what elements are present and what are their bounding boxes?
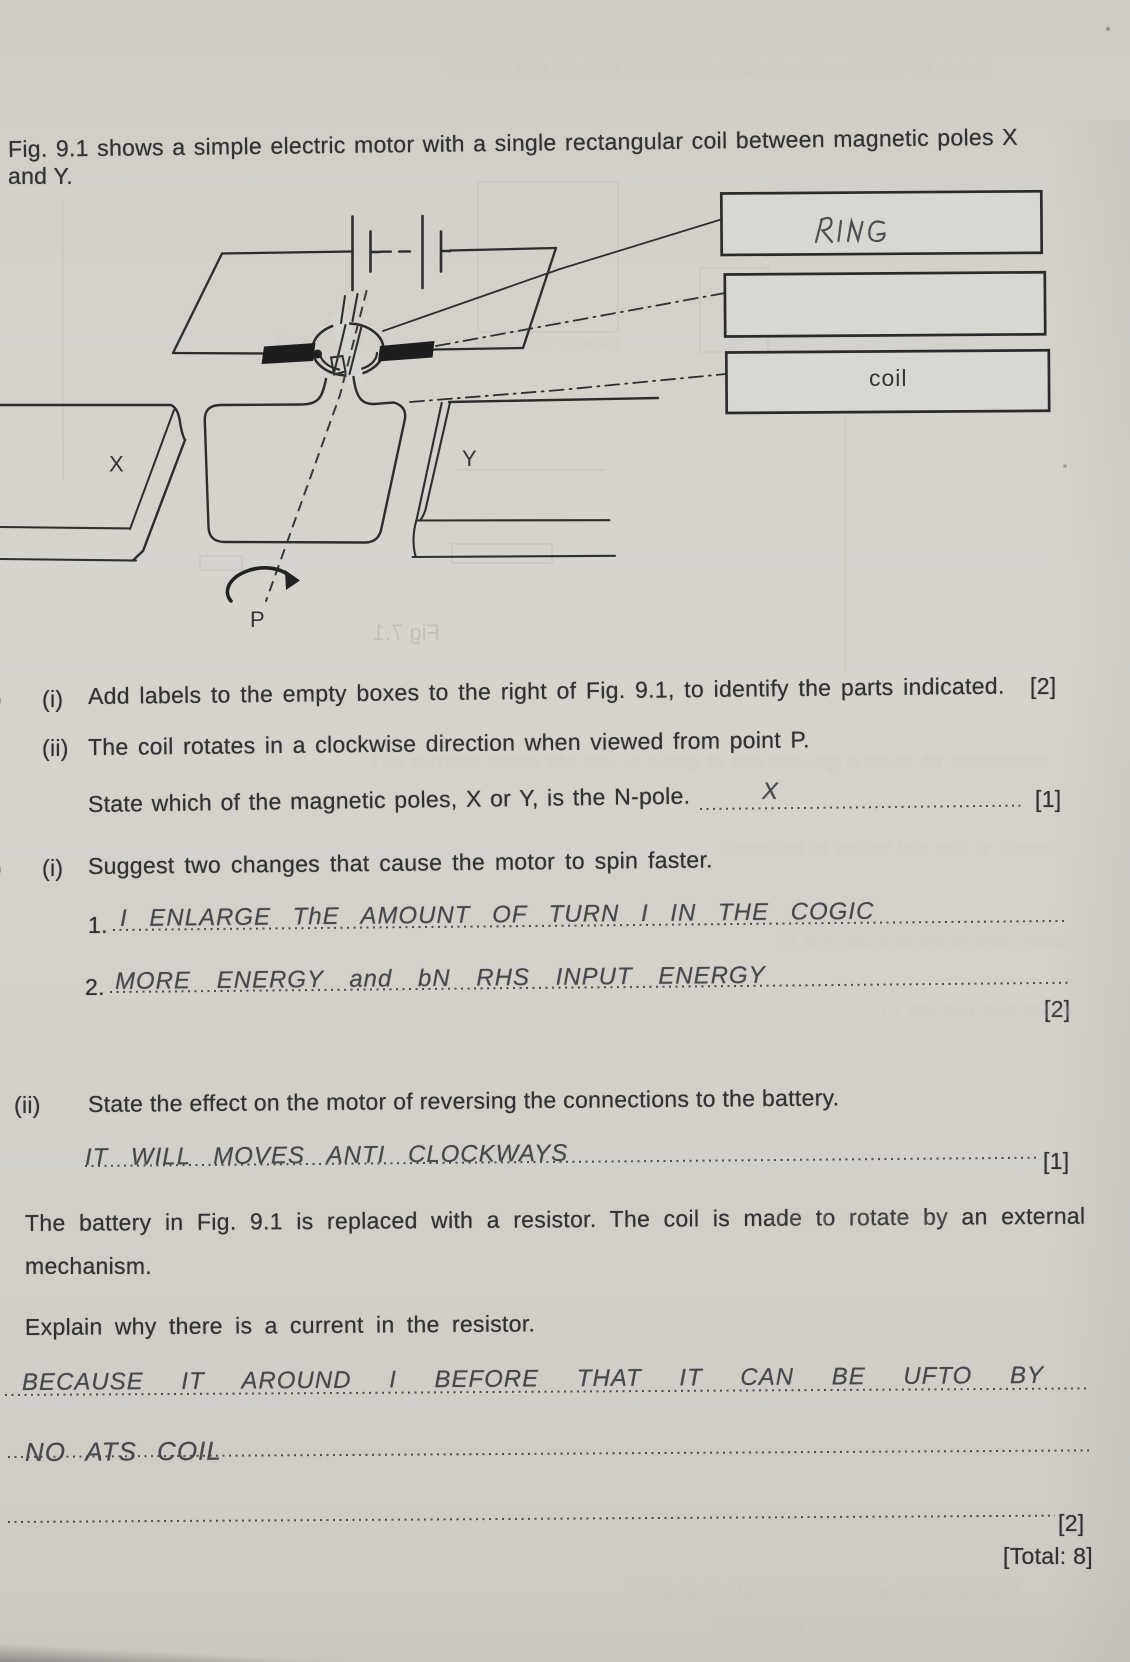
svg-text:X: X	[109, 452, 124, 477]
svg-text:P: P	[250, 607, 265, 632]
svg-text:Fig 7.1: Fig 7.1	[373, 620, 440, 645]
svg-text:coil: coil	[869, 365, 908, 391]
svg-text:Y: Y	[462, 446, 477, 471]
